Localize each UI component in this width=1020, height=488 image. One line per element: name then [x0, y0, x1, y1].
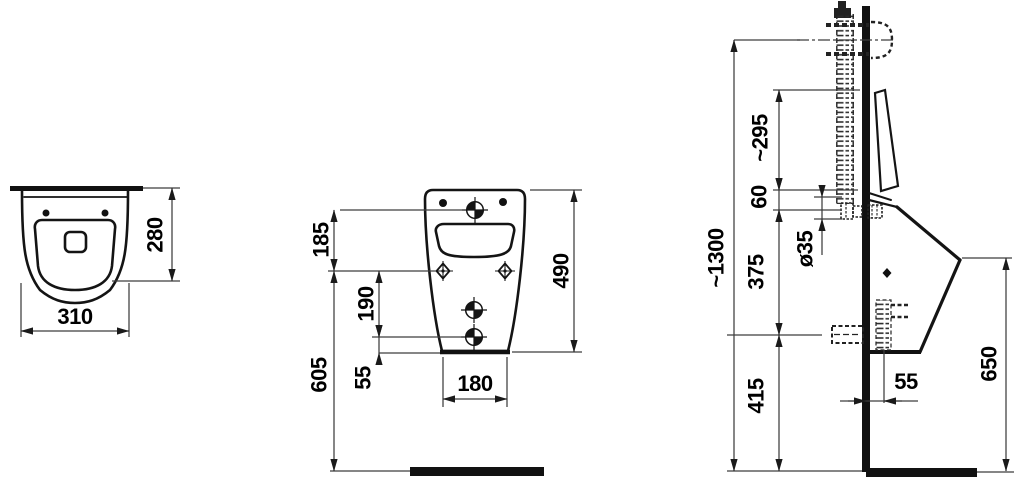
dim-55-side-label: 55 [894, 369, 918, 394]
top-view: 280 310 [10, 186, 180, 337]
outlet-lower-mark [461, 324, 487, 350]
top-hole-right [499, 198, 507, 206]
dim-190-label: 190 [354, 286, 379, 321]
outlet-siphon-hidden [832, 300, 909, 350]
dim-o35: ø35 [793, 185, 843, 267]
dim-605-label: 605 [307, 357, 332, 392]
dim-415-label: 415 [744, 378, 769, 413]
dim-o35-label: ø35 [793, 231, 818, 268]
dim-1300-label: ~1300 [704, 228, 729, 288]
wall-section-line [10, 186, 143, 191]
dim-490: 490 [512, 190, 582, 352]
urinal-installation-drawing: 280 310 185 190 [0, 0, 1020, 488]
dim-415: 415 [744, 335, 780, 471]
mounting-hole-left [43, 210, 50, 217]
fixing-hole-right-mark [495, 261, 515, 281]
dim-310-label: 310 [57, 304, 92, 329]
front-slope-lower [920, 260, 960, 352]
top-hole-left [439, 199, 447, 207]
inlet-valve [841, 203, 882, 219]
drain-opening [65, 232, 86, 252]
dim-605: 605 [307, 271, 335, 471]
outlet-upper-mark [461, 297, 487, 323]
dim-180: 180 [443, 357, 507, 407]
mounting-hole-right [102, 210, 109, 217]
dim-185: 185 [309, 210, 465, 271]
dim-490-label: 490 [549, 253, 574, 288]
dim-60-label: 60 [747, 185, 772, 209]
flush-pipe-concealed [797, 1, 893, 204]
rim-top-profile [875, 90, 898, 191]
dim-180-label: 180 [457, 371, 492, 396]
drawing-canvas: 280 310 185 190 [0, 0, 1020, 488]
dim-375: 375 [727, 210, 822, 335]
water-inlet-mark [462, 197, 488, 223]
bowl-opening [436, 224, 514, 257]
dim-55-front-label: 55 [351, 366, 376, 390]
floor-bar [866, 468, 977, 477]
fixing-hole-side-mark [883, 268, 892, 278]
floor-bar [410, 467, 544, 476]
dim-60: 60 [747, 178, 841, 222]
bowl-inner-rim [35, 220, 115, 290]
dim-650: 650 [962, 258, 1012, 471]
wall-line [862, 6, 870, 472]
front-slope-upper [897, 207, 960, 260]
side-view: ~1300 ~295 60 ø35 375 [704, 1, 1015, 477]
dim-280-label: 280 [143, 217, 168, 252]
dim-295-label: ~295 [748, 114, 773, 162]
dim-55-front: 55 [351, 325, 441, 390]
fixing-hole-left-mark [433, 261, 453, 281]
dim-650-label: 650 [977, 346, 1002, 381]
dim-55-side: 55 [840, 350, 918, 403]
front-view: 185 190 55 605 490 180 [307, 190, 583, 476]
dim-190: 190 [354, 271, 463, 337]
dim-375-label: 375 [744, 254, 769, 289]
bowl-outer-outline [22, 191, 128, 303]
dim-185-label: 185 [309, 222, 334, 257]
